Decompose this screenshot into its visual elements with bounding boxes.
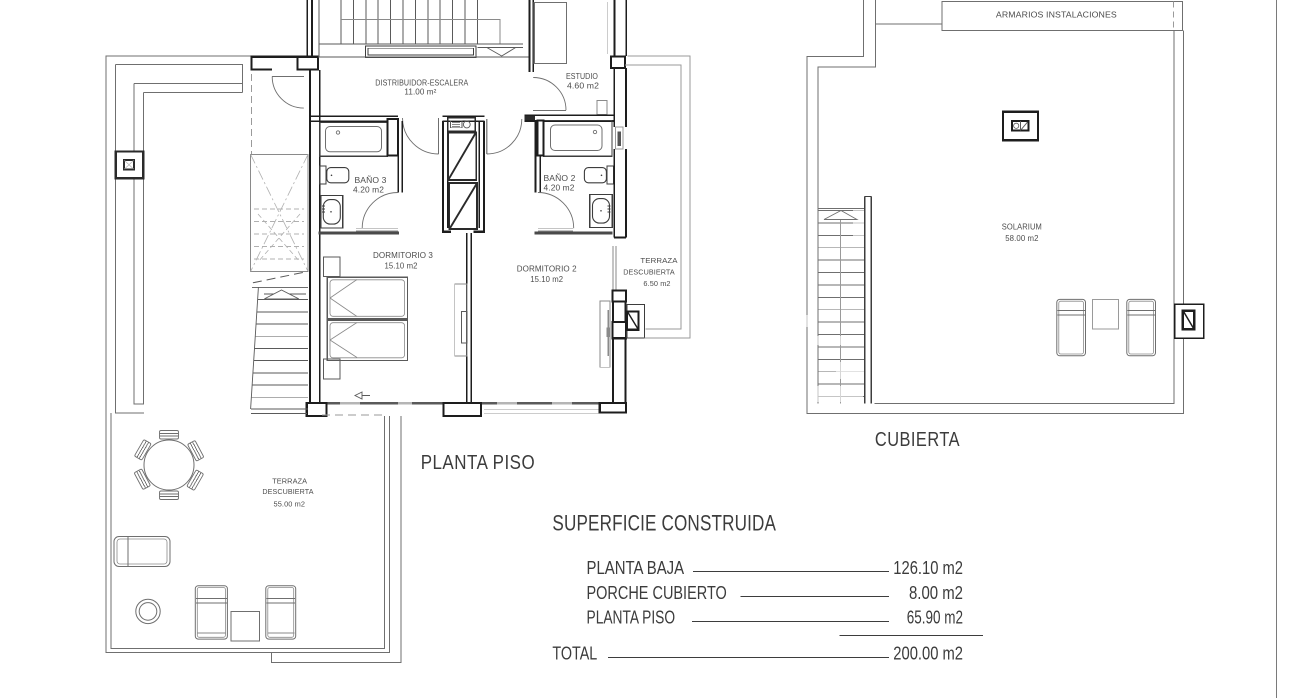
- svg-text:DORMITORIO 3: DORMITORIO 3: [373, 251, 433, 260]
- svg-text:15.10 m2: 15.10 m2: [530, 275, 563, 284]
- svg-text:DESCUBIERTA: DESCUBIERTA: [262, 487, 313, 496]
- svg-text:BAÑO 2: BAÑO 2: [544, 174, 576, 183]
- svg-text:6.50 m2: 6.50 m2: [643, 279, 670, 288]
- svg-text:TOTAL: TOTAL: [552, 644, 597, 664]
- svg-text:SOLARIUM: SOLARIUM: [1002, 223, 1042, 232]
- svg-text:4.20 m2: 4.20 m2: [544, 184, 575, 193]
- svg-text:200.00 m2: 200.00 m2: [893, 644, 963, 664]
- svg-text:TERRAZA: TERRAZA: [272, 476, 307, 485]
- svg-text:11.00 m²: 11.00 m²: [404, 88, 436, 97]
- svg-text:DORMITORIO 2: DORMITORIO 2: [517, 265, 577, 274]
- svg-text:ESTUDIO: ESTUDIO: [566, 72, 598, 81]
- svg-text:15.10 m2: 15.10 m2: [385, 262, 418, 271]
- svg-text:ARMARIOS INSTALACIONES: ARMARIOS INSTALACIONES: [996, 10, 1117, 19]
- svg-text:BAÑO 3: BAÑO 3: [355, 176, 387, 185]
- svg-text:CUBIERTA: CUBIERTA: [875, 428, 960, 451]
- svg-text:4.60 m2: 4.60 m2: [567, 82, 599, 91]
- svg-text:PLANTA PISO: PLANTA PISO: [421, 451, 536, 474]
- svg-text:8.00 m2: 8.00 m2: [909, 583, 963, 603]
- svg-text:TERRAZA: TERRAZA: [640, 256, 677, 265]
- svg-text:4.20 m2: 4.20 m2: [353, 186, 384, 195]
- svg-text:DESCUBIERTA: DESCUBIERTA: [623, 267, 675, 276]
- svg-text:58.00 m2: 58.00 m2: [1005, 234, 1039, 243]
- svg-text:PLANTA PISO: PLANTA PISO: [587, 608, 676, 628]
- svg-text:PLANTA BAJA: PLANTA BAJA: [587, 558, 685, 578]
- svg-text:SUPERFICIE CONSTRUIDA: SUPERFICIE CONSTRUIDA: [552, 510, 776, 535]
- svg-text:55.00 m2: 55.00 m2: [274, 500, 306, 509]
- svg-text:65.90 m2: 65.90 m2: [907, 608, 963, 628]
- svg-text:PORCHE CUBIERTO: PORCHE CUBIERTO: [587, 583, 727, 603]
- svg-text:DISTRIBUIDOR-ESCALERA: DISTRIBUIDOR-ESCALERA: [375, 78, 468, 87]
- svg-text:126.10 m2: 126.10 m2: [893, 558, 963, 578]
